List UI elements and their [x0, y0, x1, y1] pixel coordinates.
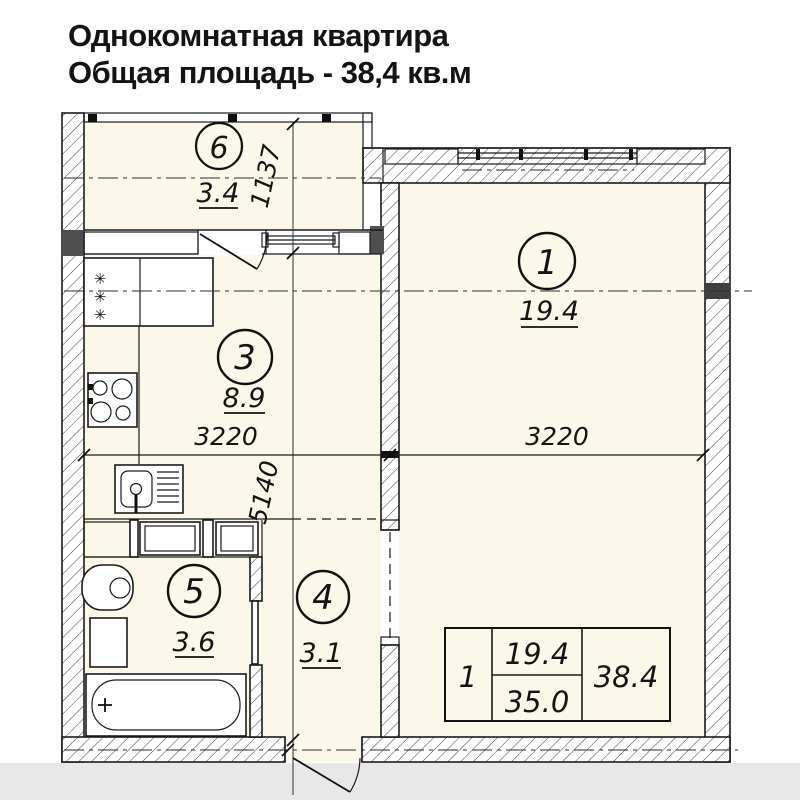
floor-plan: Однокомнатная квартира Общая площадь - 3… — [0, 0, 800, 800]
title-line-1: Однокомнатная квартира — [68, 18, 450, 53]
room-area-kitchen: 8.9 — [223, 383, 266, 414]
washing-machine-icon — [140, 522, 200, 555]
kitchen-sink-icon — [115, 465, 183, 513]
table-rooms-count: 1 — [459, 660, 477, 694]
room-number-hallway: 4 — [312, 578, 334, 618]
left-wall — [62, 113, 84, 762]
bathtub-icon — [86, 674, 246, 736]
dimension-living-width: 3220 — [525, 422, 589, 451]
room-number-kitchen: 3 — [234, 338, 256, 378]
bathroom-wall-upper — [250, 557, 262, 601]
bathroom-wall-lower — [250, 665, 262, 737]
room-area-bathroom: 3.6 — [173, 627, 216, 658]
washbasin-icon — [90, 618, 127, 667]
svg-text:✳: ✳ — [94, 270, 107, 288]
right-wall — [705, 148, 730, 762]
footer-strip — [0, 763, 800, 800]
svg-text:✳: ✳ — [94, 306, 107, 324]
stove-icon — [88, 373, 137, 427]
table-living-area: 19.4 — [505, 637, 570, 671]
hall-living-wall — [381, 645, 399, 737]
table-rooms-area: 35.0 — [505, 685, 570, 719]
title-line-2: Общая площадь - 38,4 кв.м — [68, 55, 471, 90]
room-area-balcony: 3.4 — [197, 178, 240, 209]
screenshot-root: Однокомнатная квартира Общая площадь - 3… — [0, 0, 800, 800]
toilet-icon — [82, 565, 133, 610]
wall-junction-block — [62, 230, 84, 256]
dimension-kitchen-width: 3220 — [194, 422, 258, 451]
room-area-living: 19.4 — [519, 296, 579, 327]
bathroom-door-icon — [252, 601, 258, 664]
room-area-hallway: 3.1 — [300, 638, 343, 669]
room-number-bathroom: 5 — [183, 572, 205, 612]
room-number-living: 1 — [536, 243, 558, 283]
room-number-balcony: 6 — [209, 131, 228, 166]
cabinet-icon — [216, 522, 258, 555]
fridge-icon: ✳ ✳ ✳ — [84, 258, 213, 326]
table-total-area: 38.4 — [594, 660, 659, 694]
